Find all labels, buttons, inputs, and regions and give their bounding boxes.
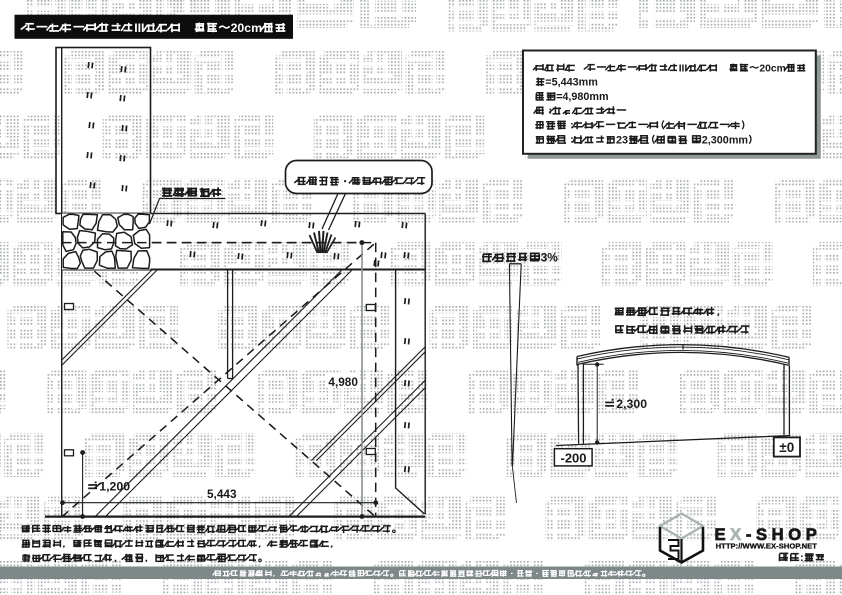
svg-text:=5,443mm: =5,443mm — [545, 77, 598, 89]
svg-text:20cm: 20cm — [231, 21, 263, 35]
svg-text:4,980: 4,980 — [328, 375, 358, 389]
svg-text:2,300mm: 2,300mm — [702, 134, 748, 146]
svg-text:23: 23 — [616, 134, 628, 146]
svg-text::: : — [800, 552, 804, 564]
svg-text:HTTP://WWW.EX-SHOP.NET: HTTP://WWW.EX-SHOP.NET — [716, 542, 818, 551]
svg-text:-200: -200 — [561, 450, 587, 465]
svg-text:III: III — [679, 63, 688, 74]
svg-text:5,443: 5,443 — [207, 487, 237, 501]
svg-text:=4,980mm: =4,980mm — [556, 91, 609, 103]
svg-text:2,300: 2,300 — [616, 397, 647, 411]
svg-text:20cm: 20cm — [759, 63, 785, 74]
svg-text:±0: ±0 — [779, 440, 794, 455]
svg-text:III: III — [134, 21, 144, 35]
svg-text:1,200: 1,200 — [99, 480, 130, 494]
svg-text:3%: 3% — [541, 251, 559, 265]
